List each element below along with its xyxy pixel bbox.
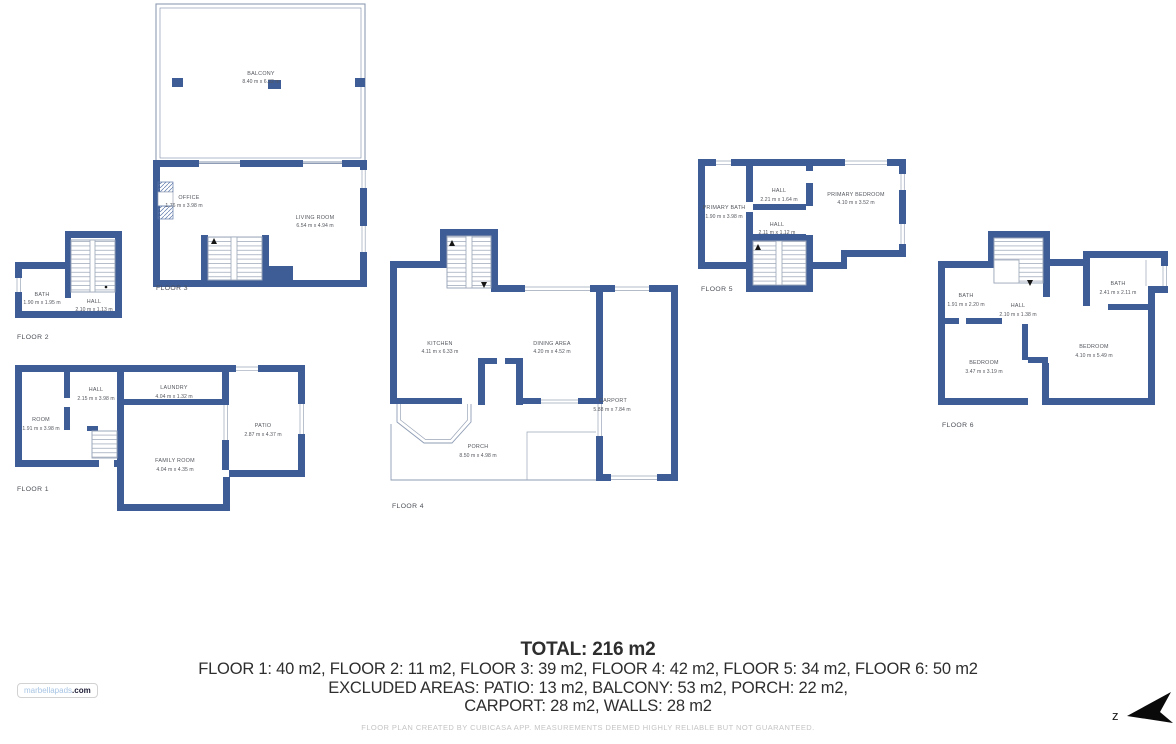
north-arrow-letter: z	[1112, 708, 1119, 723]
room-name-label: DINING AREA	[533, 341, 571, 347]
room-name-label: BATH	[1111, 281, 1126, 287]
room-name-label: FAMILY ROOM	[155, 458, 195, 464]
floor-2-stairs	[71, 240, 115, 292]
floor-2-plan: BATH 1.90 m x 1.95 m HALL 2.10 m x 1.13 …	[10, 225, 130, 330]
floor-3-label: FLOOR 3	[156, 285, 188, 292]
room-dims-label: 2.15 m x 3.98 m	[77, 396, 114, 402]
floor-2-label: FLOOR 2	[17, 334, 49, 341]
room-dims-label: 8.40 m x 6.32 m	[242, 79, 279, 85]
floor-5-stairs	[753, 241, 806, 285]
room-name-label: HALL	[89, 387, 104, 393]
logo-tld-text: .com	[72, 686, 91, 695]
room-dims-label: 1.76 m x 3.98 m	[165, 203, 202, 209]
room-name-label: PORCH	[468, 444, 489, 450]
room-dims-label: 8.50 m x 4.98 m	[459, 453, 496, 459]
floor-1-stairs	[87, 426, 117, 458]
room-name-label: HALL	[87, 299, 102, 305]
room-dims-label: 2.10 m x 1.38 m	[999, 312, 1036, 318]
room-name-label: PATIO	[255, 423, 272, 429]
room-name-label: OFFICE	[178, 195, 199, 201]
north-arrow-icon: z	[1100, 685, 1176, 727]
floor-6-stairs	[994, 238, 1043, 286]
room-dims-label: 4.10 m x 3.52 m	[837, 200, 874, 206]
floor-4-stairs	[447, 236, 491, 288]
floor-3-plan: BALCONY 8.40 m x 6.32 m OFFICE 1.76 m x …	[150, 0, 370, 300]
room-name-label: LAUNDRY	[160, 385, 188, 391]
room-dims-label: 2.11 m x 1.12 m	[759, 230, 796, 236]
floorplan-page: BALCONY 8.40 m x 6.32 m OFFICE 1.76 m x …	[0, 0, 1176, 744]
room-dims-label: 4.10 m x 5.49 m	[1075, 353, 1112, 359]
room-dims-label: 2.21 m x 1.64 m	[760, 197, 797, 203]
logo-name-text: marbellapads	[24, 686, 72, 695]
room-name-label: HALL	[770, 222, 785, 228]
room-dims-label: 1.90 m x 1.95 m	[23, 300, 60, 306]
area-summary: TOTAL: 216 m2 FLOOR 1: 40 m2, FLOOR 2: 1…	[0, 639, 1176, 716]
room-name-label: BATH	[35, 292, 50, 298]
floor-6-plan: BATH 1.91 m x 2.20 m HALL 2.10 m x 1.38 …	[933, 223, 1176, 435]
floor-1-label: FLOOR 1	[17, 486, 49, 493]
floor-5-plan: PRIMARY BATH 1.90 m x 3.98 m HALL 2.21 m…	[693, 153, 918, 298]
room-dims-label: 5.88 m x 7.84 m	[593, 407, 630, 413]
north-arrow-shape	[1127, 692, 1173, 723]
room-name-label: BEDROOM	[969, 360, 999, 366]
room-dims-label: 1.90 m x 3.98 m	[705, 214, 742, 220]
room-name-label: KITCHEN	[427, 341, 452, 347]
floor-4-plan: KITCHEN 4.11 m x 6.33 m DINING AREA 4.20…	[385, 225, 685, 517]
room-name-label: BEDROOM	[1079, 344, 1109, 350]
disclaimer-text: FLOOR PLAN CREATED BY CUBICASA APP. MEAS…	[0, 723, 1176, 732]
room-name-label: HALL	[1011, 303, 1026, 309]
room-dims-label: 1.91 m x 2.20 m	[947, 302, 984, 308]
room-name-label: PRIMARY BEDROOM	[827, 192, 885, 198]
room-dims-label: 4.11 m x 6.33 m	[422, 349, 459, 355]
stairs-marker-dot	[105, 286, 108, 289]
balcony-door-hatch	[158, 182, 173, 192]
floor-6-walls	[938, 231, 1168, 405]
room-dims-label: 4.04 m x 1.32 m	[155, 394, 192, 400]
floor-4-label: FLOOR 4	[392, 503, 424, 510]
room-name-label: ROOM	[32, 417, 50, 423]
room-name-label: HALL	[772, 188, 787, 194]
total-area-text: TOTAL: 216 m2	[0, 639, 1176, 660]
room-name-label: LIVING ROOM	[296, 215, 335, 221]
floor-5-label: FLOOR 5	[701, 286, 733, 293]
room-dims-label: 1.91 m x 3.98 m	[22, 426, 59, 432]
room-dims-label: 2.87 m x 4.37 m	[244, 432, 281, 438]
room-dims-label: 2.41 m x 2.11 m	[1100, 290, 1137, 296]
floor-areas-text: FLOOR 1: 40 m2, FLOOR 2: 11 m2, FLOOR 3:…	[0, 660, 1176, 679]
floor-6-label: FLOOR 6	[942, 422, 974, 429]
marbellapads-logo: marbellapads.com	[17, 683, 98, 698]
room-name-label: PRIMARY BATH	[703, 205, 746, 211]
floor-4-walls	[390, 229, 678, 481]
room-name-label: CARPORT	[599, 398, 627, 404]
floor-3-stairs	[208, 237, 262, 280]
excluded-areas-text-2: CARPORT: 28 m2, WALLS: 28 m2	[0, 697, 1176, 716]
bay-window	[397, 404, 471, 443]
floor-1-plan: ROOM 1.91 m x 3.98 m HALL 2.15 m x 3.98 …	[10, 360, 310, 518]
room-dims-label: 4.20 m x 4.52 m	[533, 349, 570, 355]
room-name-label: BALCONY	[247, 71, 275, 77]
excluded-areas-text: EXCLUDED AREAS: PATIO: 13 m2, BALCONY: 5…	[0, 679, 1176, 698]
room-dims-label: 2.10 m x 1.13 m	[75, 307, 112, 313]
room-dims-label: 4.04 m x 4.35 m	[156, 467, 193, 473]
room-name-label: BATH	[959, 293, 974, 299]
porch-outline	[391, 424, 596, 480]
room-dims-label: 6.54 m x 4.94 m	[296, 223, 333, 229]
room-dims-label: 3.47 m x 3.19 m	[965, 369, 1002, 375]
